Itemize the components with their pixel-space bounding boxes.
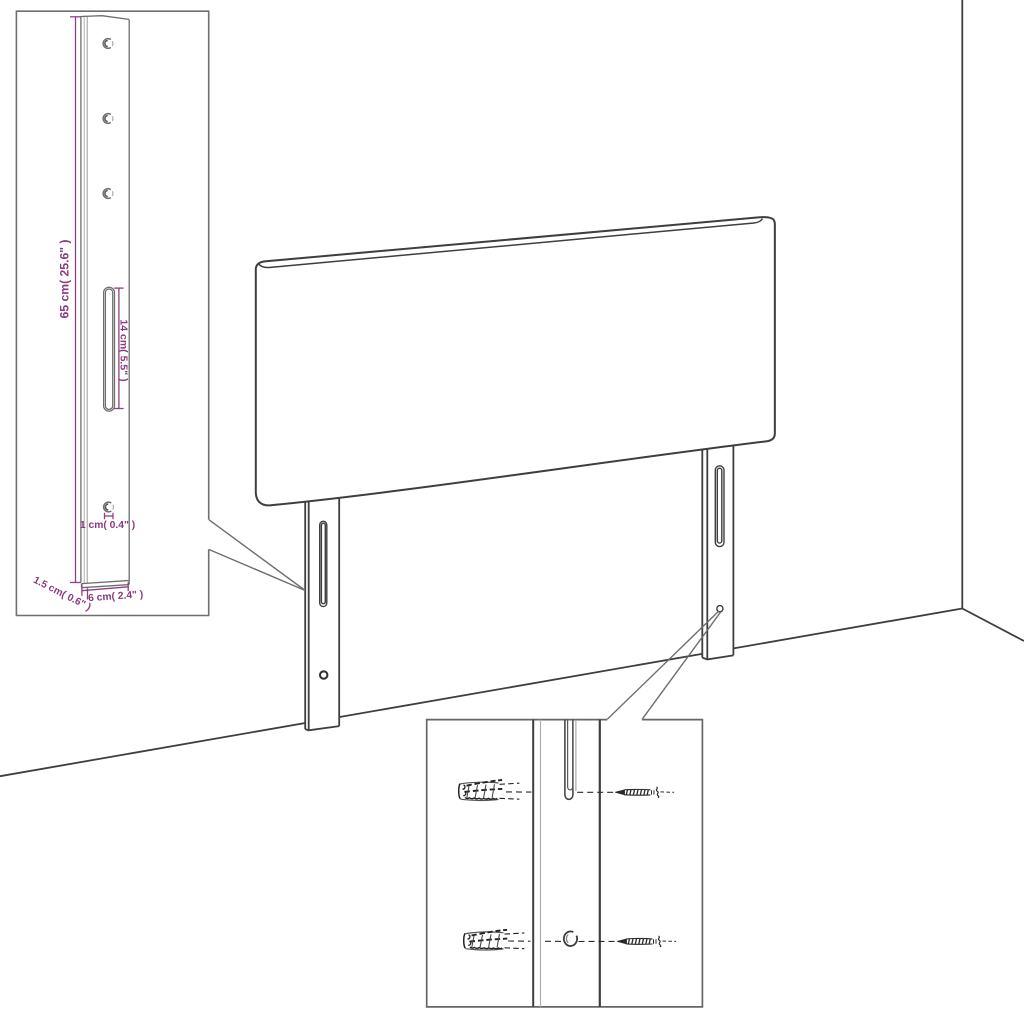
svg-text:65 cm( 25.6" ): 65 cm( 25.6" ) — [57, 240, 71, 319]
svg-text:14 cm( 5.5" ): 14 cm( 5.5" ) — [118, 319, 130, 381]
svg-text:1 cm( 0.4" ): 1 cm( 0.4" ) — [80, 520, 135, 531]
